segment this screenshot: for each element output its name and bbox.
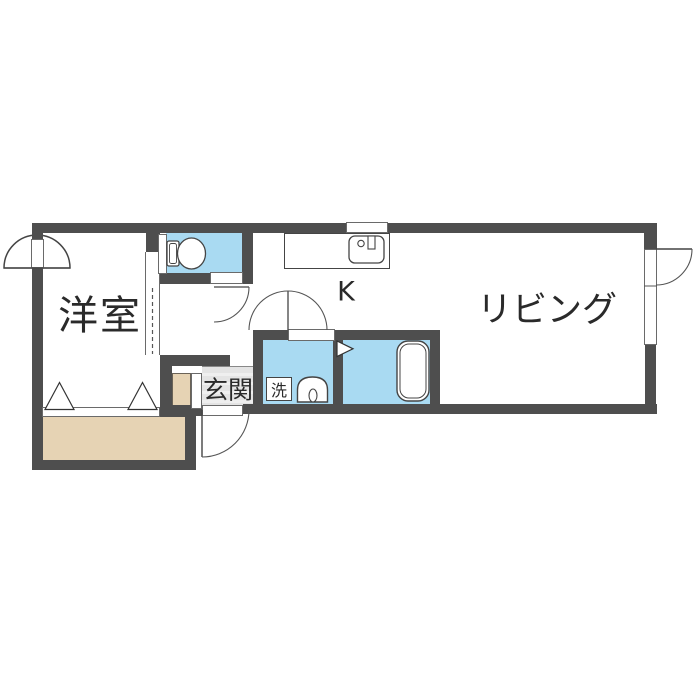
- kitchen-window: [346, 222, 388, 233]
- entrance-door-arc: [202, 410, 249, 457]
- western-room-label: 洋室: [58, 296, 142, 336]
- wall-toilet-right: [242, 233, 253, 284]
- window-triangle-icon: [45, 383, 74, 410]
- entrance-door-opening: [202, 405, 243, 416]
- wall-toilet-bottom: [158, 273, 210, 284]
- window-triangle-icon: [128, 383, 157, 410]
- wall-westernroom-right-bottom: [160, 355, 172, 410]
- laundry-box: 洗: [266, 377, 292, 401]
- wall-washroom-top-left: [253, 330, 288, 340]
- toilet-door-opening: [210, 272, 243, 284]
- bathroom: [343, 340, 430, 404]
- wall-washroom-top-right: [335, 330, 343, 340]
- wall-right-bottom: [645, 345, 656, 405]
- toilet-room: [166, 233, 243, 274]
- laundry-label: 洗: [271, 377, 287, 401]
- living-door-window: [644, 249, 657, 345]
- wall-balcony-right: [185, 415, 196, 470]
- wall-balcony-bottom: [32, 460, 196, 470]
- left-window: [31, 239, 44, 268]
- kitchen-counter: [284, 233, 390, 269]
- wall-bath-divider: [333, 340, 343, 404]
- toilet-door-arc: [214, 287, 249, 322]
- shoe-cabinet: [172, 373, 191, 409]
- wall-right-top: [644, 223, 657, 250]
- wall-top-right: [387, 223, 657, 233]
- floor-plan: 洋室 リビング K 玄関 洗: [0, 0, 700, 700]
- wall-bottom: [243, 404, 657, 414]
- entrance-step: [191, 373, 202, 409]
- wall-top-left: [32, 223, 347, 233]
- balcony-window-sill: [42, 407, 160, 417]
- living-door-arc: [656, 249, 692, 285]
- balcony: [42, 415, 185, 461]
- living-room-label: リビング: [477, 294, 617, 329]
- entrance-label: 玄関: [203, 378, 253, 403]
- kitchen-label: K: [337, 279, 355, 306]
- toilet-side-shelf: [158, 234, 167, 274]
- washroom-door-arc: [249, 291, 288, 330]
- washroom-door-opening: [288, 329, 335, 341]
- washroom-door-arc: [288, 291, 327, 330]
- wall-washroom-left: [253, 330, 263, 404]
- wall-bath-top: [343, 330, 440, 340]
- wall-bath-right: [430, 330, 440, 404]
